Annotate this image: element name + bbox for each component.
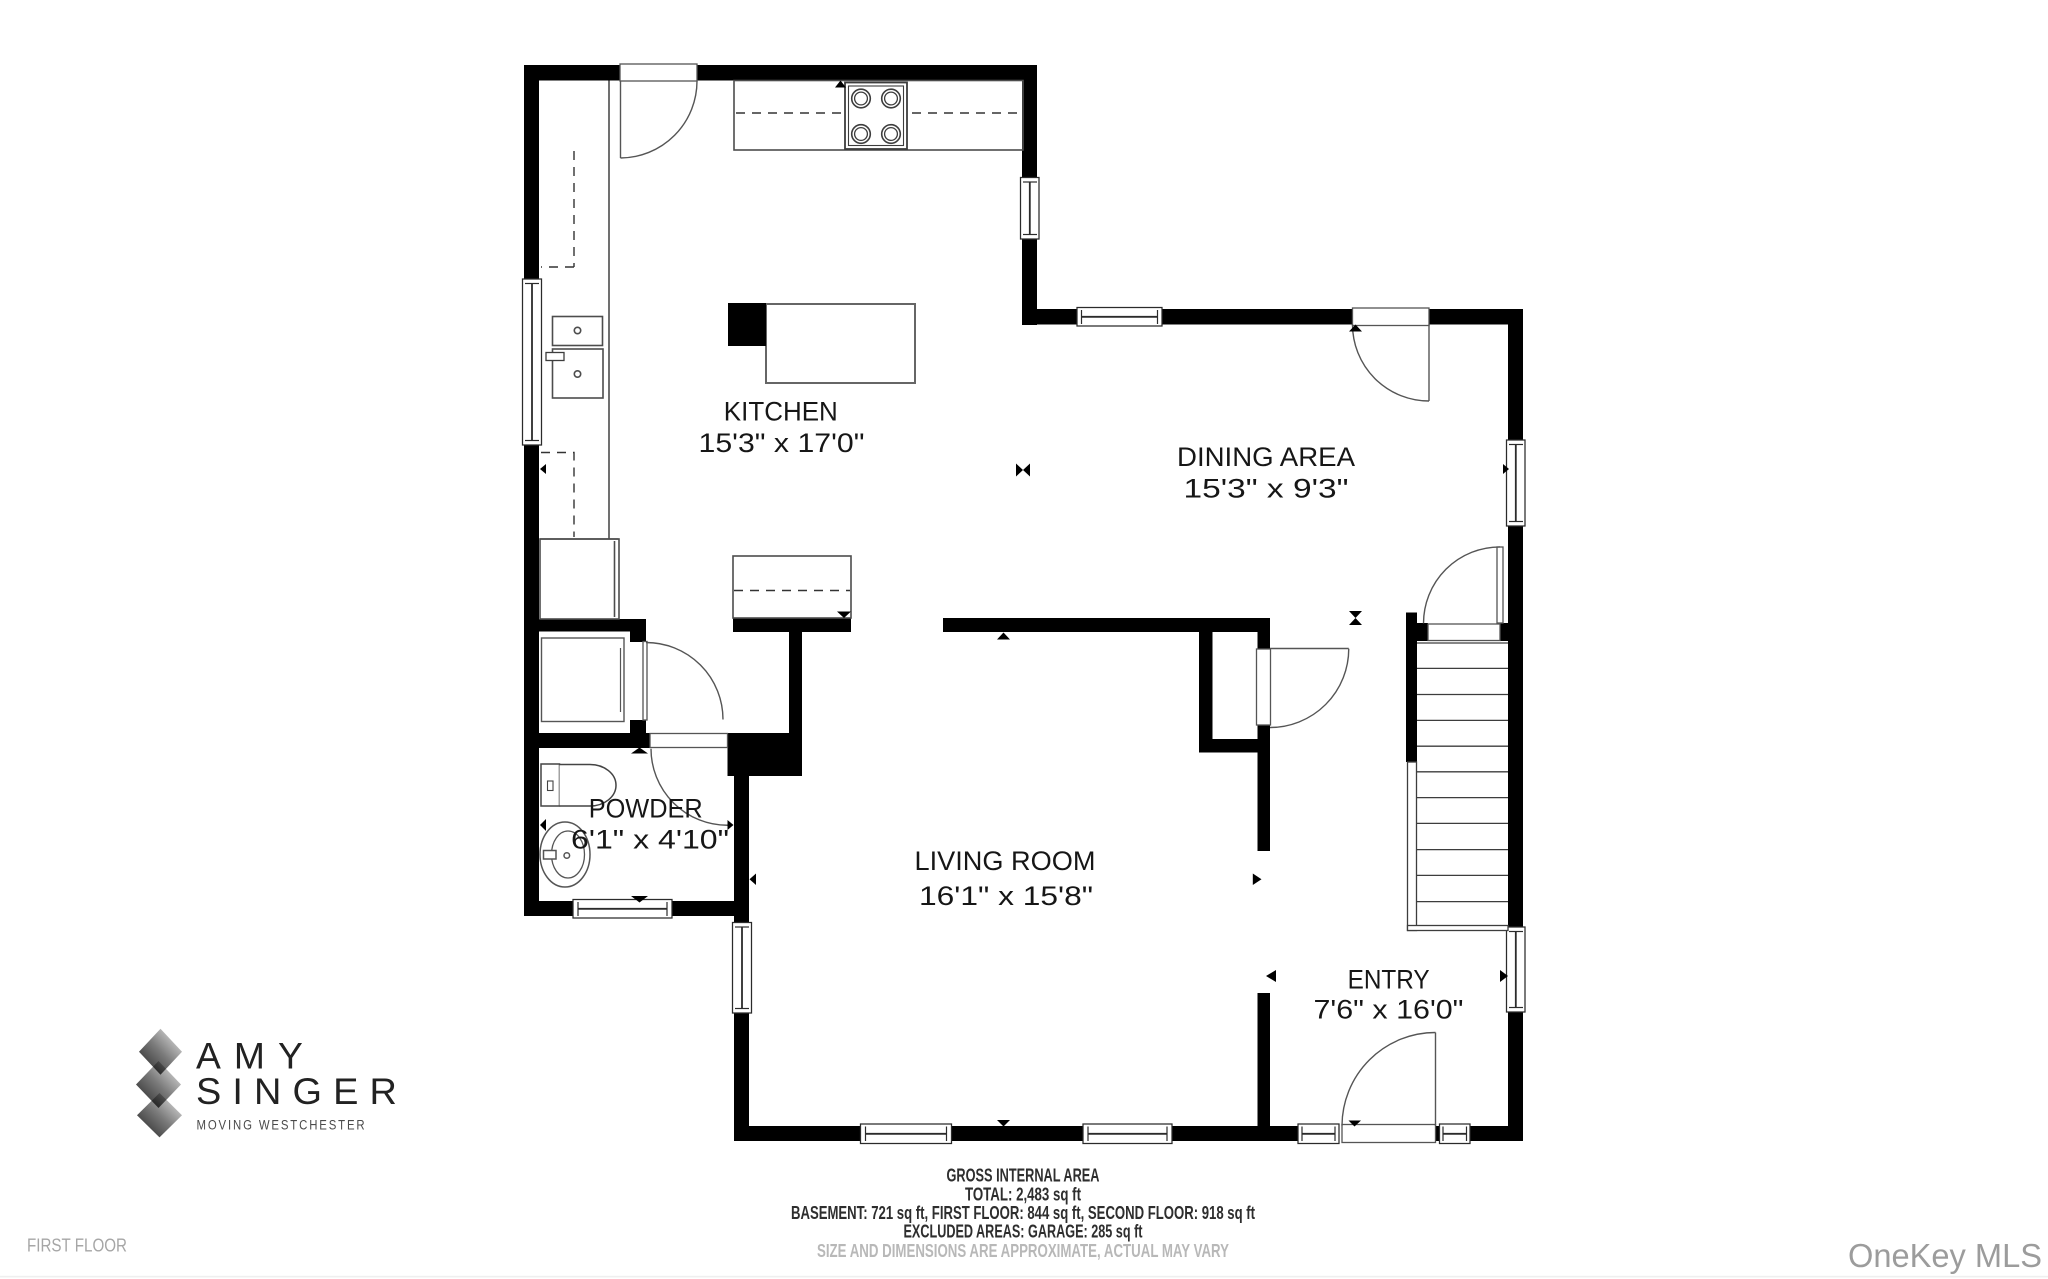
svg-text:MOVING WESTCHESTER: MOVING WESTCHESTER [197,1118,367,1133]
svg-text:DINING AREA: DINING AREA [1177,442,1355,472]
svg-text:SINGER: SINGER [196,1070,408,1112]
svg-text:15'3" x 9'3": 15'3" x 9'3" [1184,474,1349,504]
svg-text:POWDER: POWDER [589,794,703,824]
svg-text:EXCLUDED AREAS: GARAGE: 285 sq: EXCLUDED AREAS: GARAGE: 285 sq ft [904,1221,1143,1242]
svg-text:7'6" x 16'0": 7'6" x 16'0" [1314,995,1464,1025]
svg-text:FIRST FLOOR: FIRST FLOOR [27,1235,127,1256]
svg-text:LIVING ROOM: LIVING ROOM [915,846,1096,876]
svg-text:SIZE AND DIMENSIONS ARE APPROX: SIZE AND DIMENSIONS ARE APPROXIMATE, ACT… [817,1240,1229,1261]
svg-text:OneKey MLS: OneKey MLS [1848,1238,2042,1275]
svg-text:GROSS INTERNAL AREA: GROSS INTERNAL AREA [947,1165,1100,1186]
svg-text:ENTRY: ENTRY [1348,965,1430,995]
svg-text:KITCHEN: KITCHEN [724,397,838,427]
svg-text:16'1" x 15'8": 16'1" x 15'8" [919,881,1093,911]
svg-text:6'1" x 4'10": 6'1" x 4'10" [571,825,729,855]
svg-text:15'3" x 17'0": 15'3" x 17'0" [699,428,865,458]
